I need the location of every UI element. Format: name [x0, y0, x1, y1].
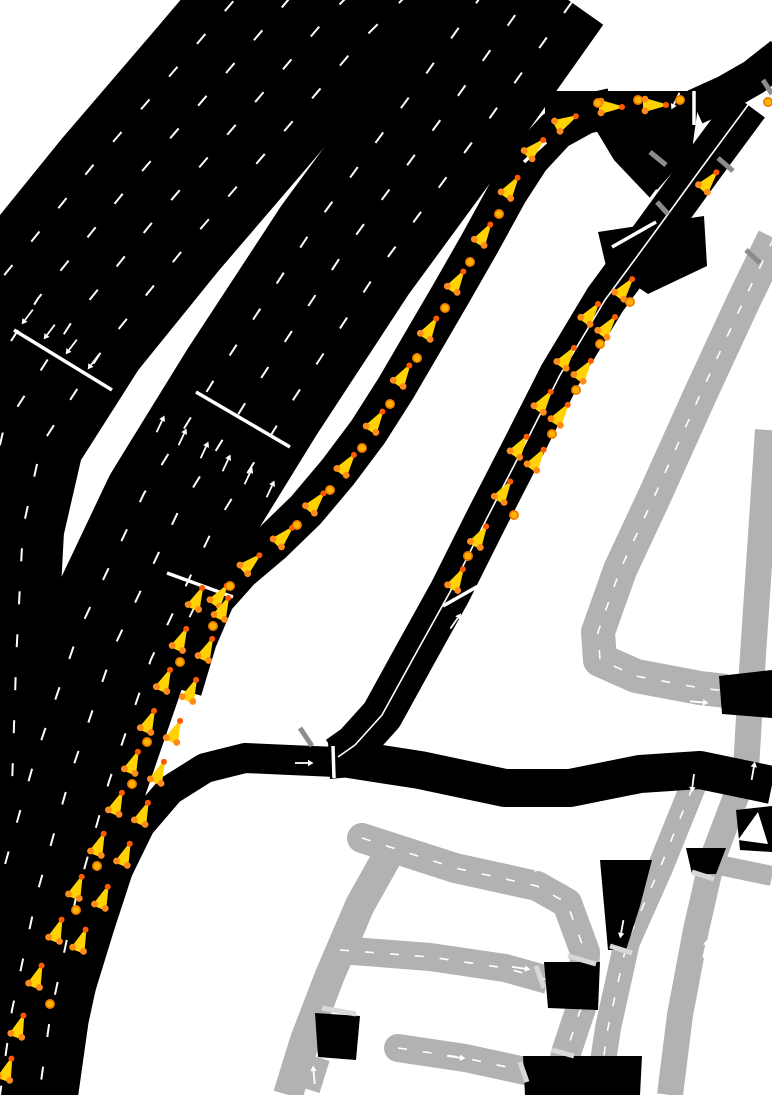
small-vehicle[interactable] — [143, 738, 151, 746]
small-vehicle[interactable] — [441, 304, 449, 312]
map-canvas — [0, 0, 772, 1095]
small-vehicle[interactable] — [326, 486, 334, 494]
small-vehicle[interactable] — [464, 552, 472, 560]
road-gray-stub-right[interactable] — [714, 864, 772, 876]
small-vehicle[interactable] — [93, 862, 101, 870]
small-vehicle[interactable] — [548, 430, 556, 438]
small-vehicle[interactable] — [572, 386, 580, 394]
small-vehicle[interactable] — [46, 1000, 54, 1008]
small-vehicle[interactable] — [510, 511, 518, 519]
small-vehicle[interactable] — [676, 96, 684, 104]
stop-line — [300, 728, 312, 746]
small-vehicle[interactable] — [626, 298, 634, 306]
small-vehicle[interactable] — [596, 340, 604, 348]
junction-separator-line — [333, 746, 334, 778]
junction-right-edge[interactable] — [719, 670, 772, 718]
small-vehicle[interactable] — [128, 780, 136, 788]
small-vehicle[interactable] — [293, 521, 301, 529]
small-vehicle[interactable] — [495, 210, 503, 218]
small-vehicle[interactable] — [176, 658, 184, 666]
small-vehicle[interactable] — [358, 444, 366, 452]
small-vehicle[interactable] — [634, 96, 642, 104]
small-vehicle[interactable] — [209, 622, 217, 630]
road-road-east[interactable] — [336, 757, 772, 788]
road-gray-stub-low[interactable] — [310, 1058, 320, 1090]
traffic-simulation-map — [0, 0, 772, 1095]
small-vehicle[interactable] — [413, 354, 421, 362]
small-vehicle[interactable] — [466, 258, 474, 266]
junction-grid-mid[interactable] — [544, 962, 600, 1010]
road-gray-street-low[interactable] — [398, 1048, 530, 1072]
small-vehicle[interactable] — [386, 400, 394, 408]
small-vehicle[interactable] — [226, 582, 234, 590]
small-vehicle[interactable] — [72, 906, 80, 914]
junction-diag-low[interactable] — [315, 1013, 360, 1060]
small-vehicle[interactable] — [594, 99, 602, 107]
road-gray-street-mid[interactable] — [340, 950, 548, 980]
junction-grid-bottom[interactable] — [523, 1056, 642, 1095]
small-vehicle[interactable] — [764, 98, 772, 106]
